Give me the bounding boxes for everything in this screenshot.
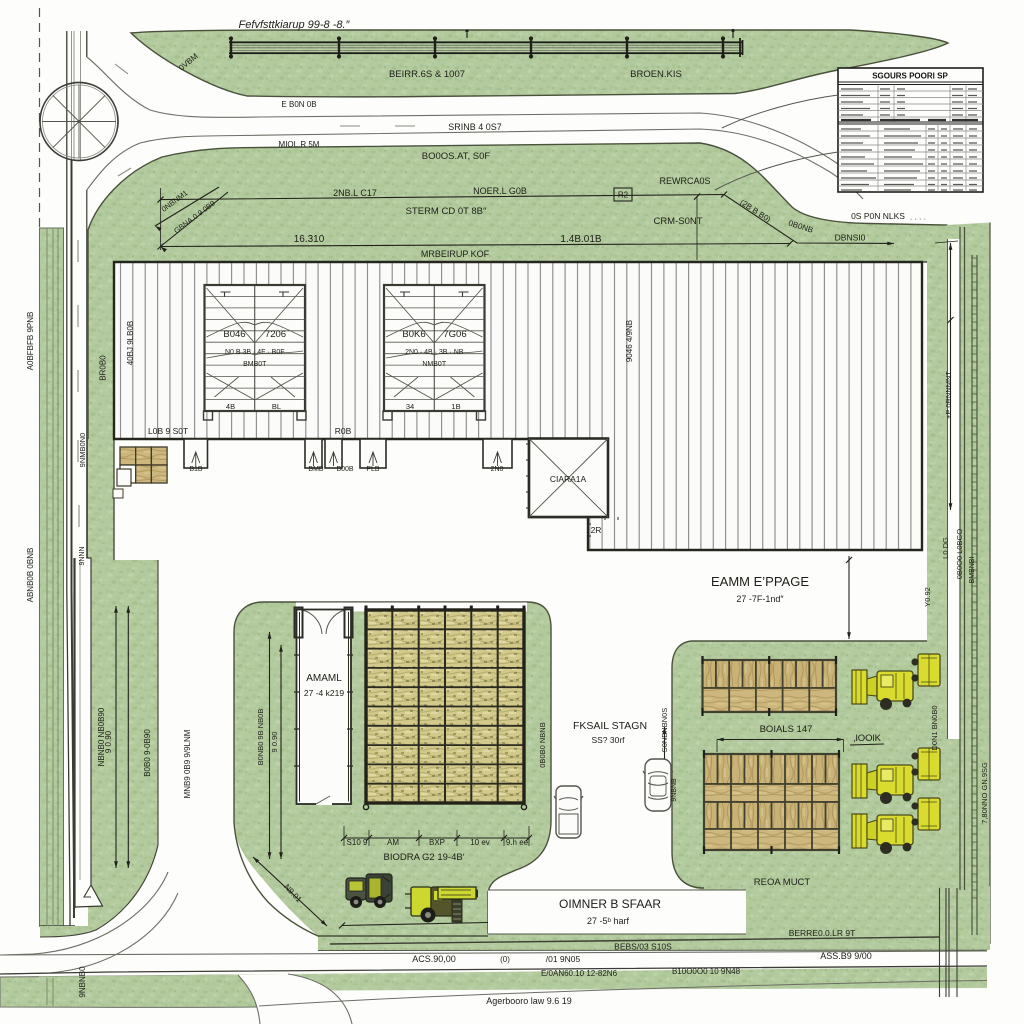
svg-text:ACS.90,00: ACS.90,00 (412, 954, 456, 964)
svg-text:9NBNB: 9NBNB (671, 778, 678, 802)
svg-text:· · · ·: · · · · (910, 214, 926, 223)
svg-text:Fefvfsttkiarup 99-8 -8.″: Fefvfsttkiarup 99-8 -8.″ (239, 19, 351, 31)
svg-text:BEBS/03 S10S: BEBS/03 S10S (614, 942, 672, 952)
svg-text:FKSAIL STAGN: FKSAIL STAGN (573, 720, 647, 732)
svg-text:B046: B046 (223, 329, 245, 340)
svg-text:27 -5ᵇ harf: 27 -5ᵇ harf (587, 916, 629, 926)
svg-text:(0): (0) (500, 955, 510, 964)
svg-text:27 -7F-1nd″: 27 -7F-1nd″ (736, 594, 784, 604)
svg-text:SS? 30rf: SS? 30rf (591, 735, 625, 745)
svg-text:27 -4 k219: 27 -4 k219 (304, 688, 344, 698)
svg-text:B00B: B00B (336, 466, 353, 473)
svg-text:7G06: 7G06 (443, 329, 466, 340)
svg-text:L0B 9 S0T: L0B 9 S0T (148, 426, 188, 436)
svg-text:BIODRA G2 19-4B′: BIODRA G2 19-4B′ (384, 852, 465, 863)
svg-text:BMBNBI: BMBNBI (969, 557, 976, 584)
svg-text:7206: 7206 (265, 329, 286, 340)
svg-text:B0NB0 9B NB0B: B0NB0 9B NB0B (256, 709, 265, 766)
svg-text:AMAML: AMAML (306, 673, 342, 684)
svg-text:L0 DG: L0 DG (941, 537, 950, 559)
svg-text:4B: 4B (226, 402, 235, 411)
svg-text:1.4B.01B: 1.4B.01B (560, 234, 601, 245)
svg-text:NMB0T: NMB0T (422, 361, 446, 368)
svg-text:ASS.B9 9/00: ASS.B9 9/00 (820, 951, 872, 961)
svg-text:/01 9N05: /01 9N05 (546, 954, 581, 964)
svg-text:7,80NNO GN.9SG: 7,80NNO GN.9SG (980, 762, 989, 824)
svg-text:9 0.90: 9 0.90 (270, 732, 279, 753)
svg-text:N0 B 3B · 4F · B0F: N0 B 3B · 4F · B0F (225, 349, 285, 356)
svg-text:BEIRR.6S & 1007: BEIRR.6S & 1007 (389, 69, 465, 80)
svg-text:B0K6: B0K6 (402, 329, 425, 340)
svg-text:AM: AM (387, 838, 399, 847)
svg-text:STERM CD 0T 8B″: STERM CD 0T 8B″ (406, 206, 487, 217)
svg-text:S0NBNBN0S: S0NBNBN0S (660, 708, 669, 753)
svg-text:BMB0T: BMB0T (243, 361, 267, 368)
svg-text:MRBEIRUP KOF: MRBEIRUP KOF (421, 249, 490, 259)
svg-text:R0B: R0B (335, 426, 352, 436)
svg-text:CRM-S0NT: CRM-S0NT (653, 216, 702, 227)
svg-text:9.h ee: 9.h ee (506, 838, 529, 847)
svg-text:2R: 2R (591, 525, 602, 535)
svg-text:PLB: PLB (366, 466, 380, 473)
svg-text:ABNB0B 0BNB: ABNB0B 0BNB (26, 548, 35, 603)
svg-text:SGOURS POORI SP: SGOURS POORI SP (872, 72, 948, 81)
svg-text:BO0OS.AT, S0F: BO0OS.AT, S0F (422, 151, 491, 162)
svg-text:OIMNER B SFAAR: OIMNER B SFAAR (559, 897, 661, 911)
svg-text:DBNSI0: DBNSI0 (835, 233, 866, 243)
svg-text:REWRCA0S: REWRCA0S (659, 176, 710, 186)
svg-text:BL: BL (272, 402, 281, 411)
svg-text:9NNN: 9NNN (79, 546, 86, 565)
svg-text:Agerbooro law 9.6 19: Agerbooro law 9.6 19 (486, 996, 572, 1006)
svg-text:9NBNB0: 9NBNB0 (78, 966, 87, 998)
svg-text:Y0.92: Y0.92 (923, 587, 932, 607)
svg-text:2N0: 2N0 (491, 466, 504, 473)
svg-text:A0BFBFB 9PNB: A0BFBFB 9PNB (26, 312, 35, 371)
svg-text:40BJ 9LB0B: 40BJ 9LB0B (126, 321, 135, 365)
svg-text:0S P0N NLKS: 0S P0N NLKS (851, 211, 905, 221)
svg-text:0B0O0 L0BGO: 0B0O0 L0BGO (955, 529, 964, 580)
svg-text:NOER.L G0B: NOER.L G0B (473, 186, 527, 196)
svg-text:BERRE0.0.LR 9T: BERRE0.0.LR 9T (789, 928, 856, 938)
svg-text:B1B: B1B (189, 466, 203, 473)
svg-text:E B0N 0B: E B0N 0B (281, 100, 316, 109)
svg-text:9 0.90: 9 0.90 (104, 730, 113, 753)
svg-text:BMB: BMB (308, 466, 324, 473)
svg-text:D0N1 BN0B0: D0N1 BN0B0 (930, 705, 939, 750)
svg-text:+P 0RNNMNT: +P 0RNNMNT (944, 371, 953, 419)
svg-text:SRINB 4 0S7: SRINB 4 0S7 (448, 122, 502, 132)
svg-text:R2: R2 (618, 191, 629, 200)
svg-text:E/0AN60.10 12-82N6: E/0AN60.10 12-82N6 (541, 969, 618, 978)
svg-text:EAMM E’PPAGE: EAMM E’PPAGE (711, 574, 809, 589)
svg-text:MIOL.R 5M: MIOL.R 5M (279, 140, 320, 149)
svg-text:9NMB0N0: 9NMB0N0 (78, 433, 87, 468)
svg-text:BR0B0: BR0B0 (99, 355, 108, 381)
svg-text:BXP: BXP (429, 838, 445, 847)
svg-text:REOA MUCT: REOA MUCT (754, 877, 811, 888)
svg-text:2NB.L C17: 2NB.L C17 (333, 188, 377, 198)
svg-text:MNB9 0B9 9/9LNM: MNB9 0B9 9/9LNM (183, 729, 192, 798)
svg-text:,lOOlK: ,lOOlK (853, 733, 882, 744)
svg-text:B10O0O0 10 9N48: B10O0O0 10 9N48 (672, 967, 741, 976)
svg-text:1B: 1B (451, 402, 460, 411)
svg-text:BROEN.KIS: BROEN.KIS (630, 69, 682, 80)
svg-text:16.310: 16.310 (294, 234, 325, 245)
svg-text:BOIALS 147: BOIALS 147 (760, 724, 813, 735)
svg-text:2N0 · 4B · 3B · NB: 2N0 · 4B · 3B · NB (405, 349, 464, 356)
svg-text:34: 34 (406, 402, 414, 411)
svg-text:0B0B0 NBNB: 0B0B0 NBNB (538, 722, 547, 767)
svg-text:CIARA1A: CIARA1A (550, 474, 587, 484)
svg-text:9046 4/9NB: 9046 4/9NB (625, 320, 634, 362)
svg-text:B0B0 9-0B90: B0B0 9-0B90 (143, 729, 152, 777)
svg-text:10 ev: 10 ev (470, 838, 490, 847)
svg-text:S10 9: S10 9 (347, 838, 368, 847)
